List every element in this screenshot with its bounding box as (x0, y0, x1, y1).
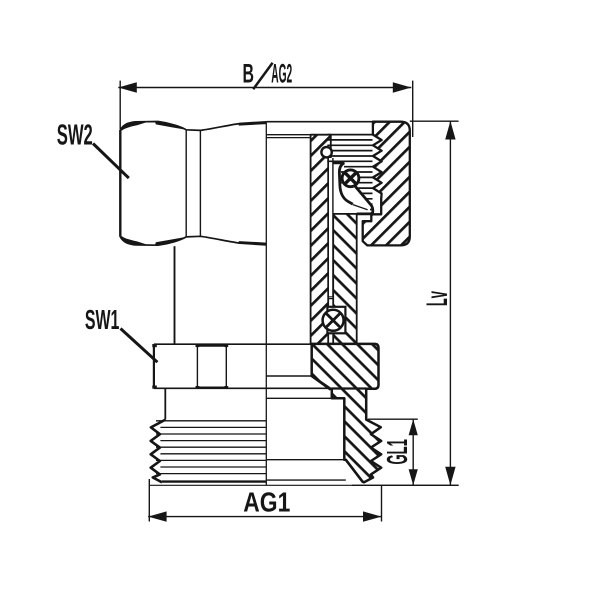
svg-text:AG1: AG1 (243, 487, 290, 518)
svg-text:B: B (243, 58, 255, 88)
svg-text:GL1: GL1 (382, 439, 414, 464)
svg-text:SW1: SW1 (85, 304, 120, 335)
svg-text:Lv: Lv (421, 291, 454, 306)
svg-text:SW2: SW2 (57, 120, 93, 152)
svg-text:AG2: AG2 (271, 58, 292, 88)
